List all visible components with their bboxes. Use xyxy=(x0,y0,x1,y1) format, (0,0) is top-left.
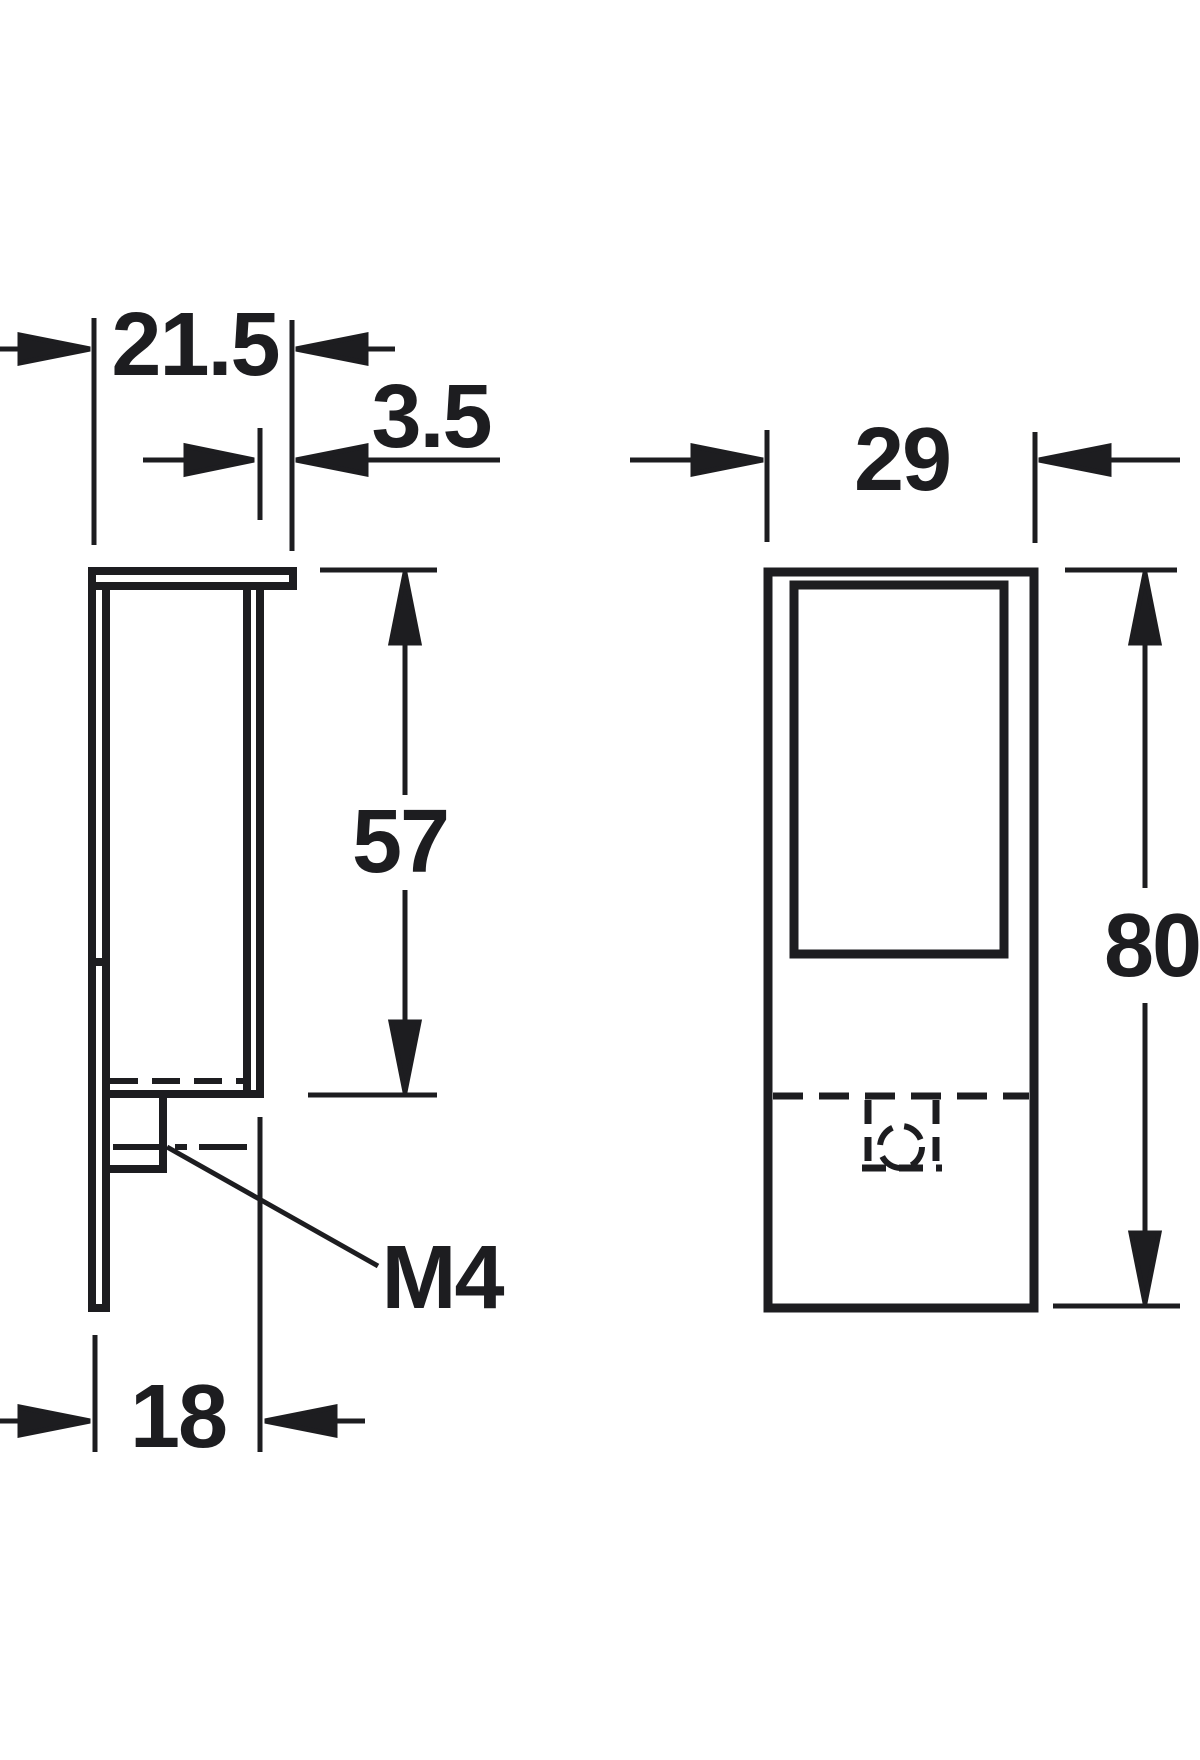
dim-label-channel-depth: 57 xyxy=(352,797,448,887)
dim-label-flange-overhang: 3.5 xyxy=(371,372,490,462)
arrowhead xyxy=(1131,1233,1159,1303)
dim-label-front-width: 29 xyxy=(854,415,950,505)
side-flange xyxy=(92,571,293,586)
front-outer-body xyxy=(768,572,1034,1308)
front-hidden-screw-hole xyxy=(880,1126,922,1168)
front-view-profile xyxy=(768,572,1034,1308)
front-window-cutout xyxy=(794,585,1004,954)
dim-label-front-height: 80 xyxy=(1104,901,1200,991)
arrowhead xyxy=(186,446,254,474)
arrowhead xyxy=(265,1407,335,1435)
arrowhead xyxy=(1131,573,1159,643)
arrowhead xyxy=(296,446,366,474)
arrowhead xyxy=(391,573,419,643)
dim-label-thread: M4 xyxy=(381,1233,502,1323)
technical-drawing-canvas: 21.5 3.5 57 M4 18 29 80 xyxy=(0,0,1200,1760)
m4-leader-line xyxy=(167,1147,378,1266)
drawing-geometry xyxy=(0,0,1200,1760)
arrowhead xyxy=(693,446,763,474)
arrowhead xyxy=(20,335,90,363)
dim-label-body-depth: 18 xyxy=(130,1372,226,1462)
front-hidden-boss xyxy=(862,1100,942,1168)
dim-label-overall-width: 21.5 xyxy=(111,300,278,390)
arrowhead xyxy=(1039,446,1109,474)
arrowhead xyxy=(296,335,366,363)
arrowhead xyxy=(20,1407,90,1435)
arrowhead xyxy=(391,1022,419,1092)
